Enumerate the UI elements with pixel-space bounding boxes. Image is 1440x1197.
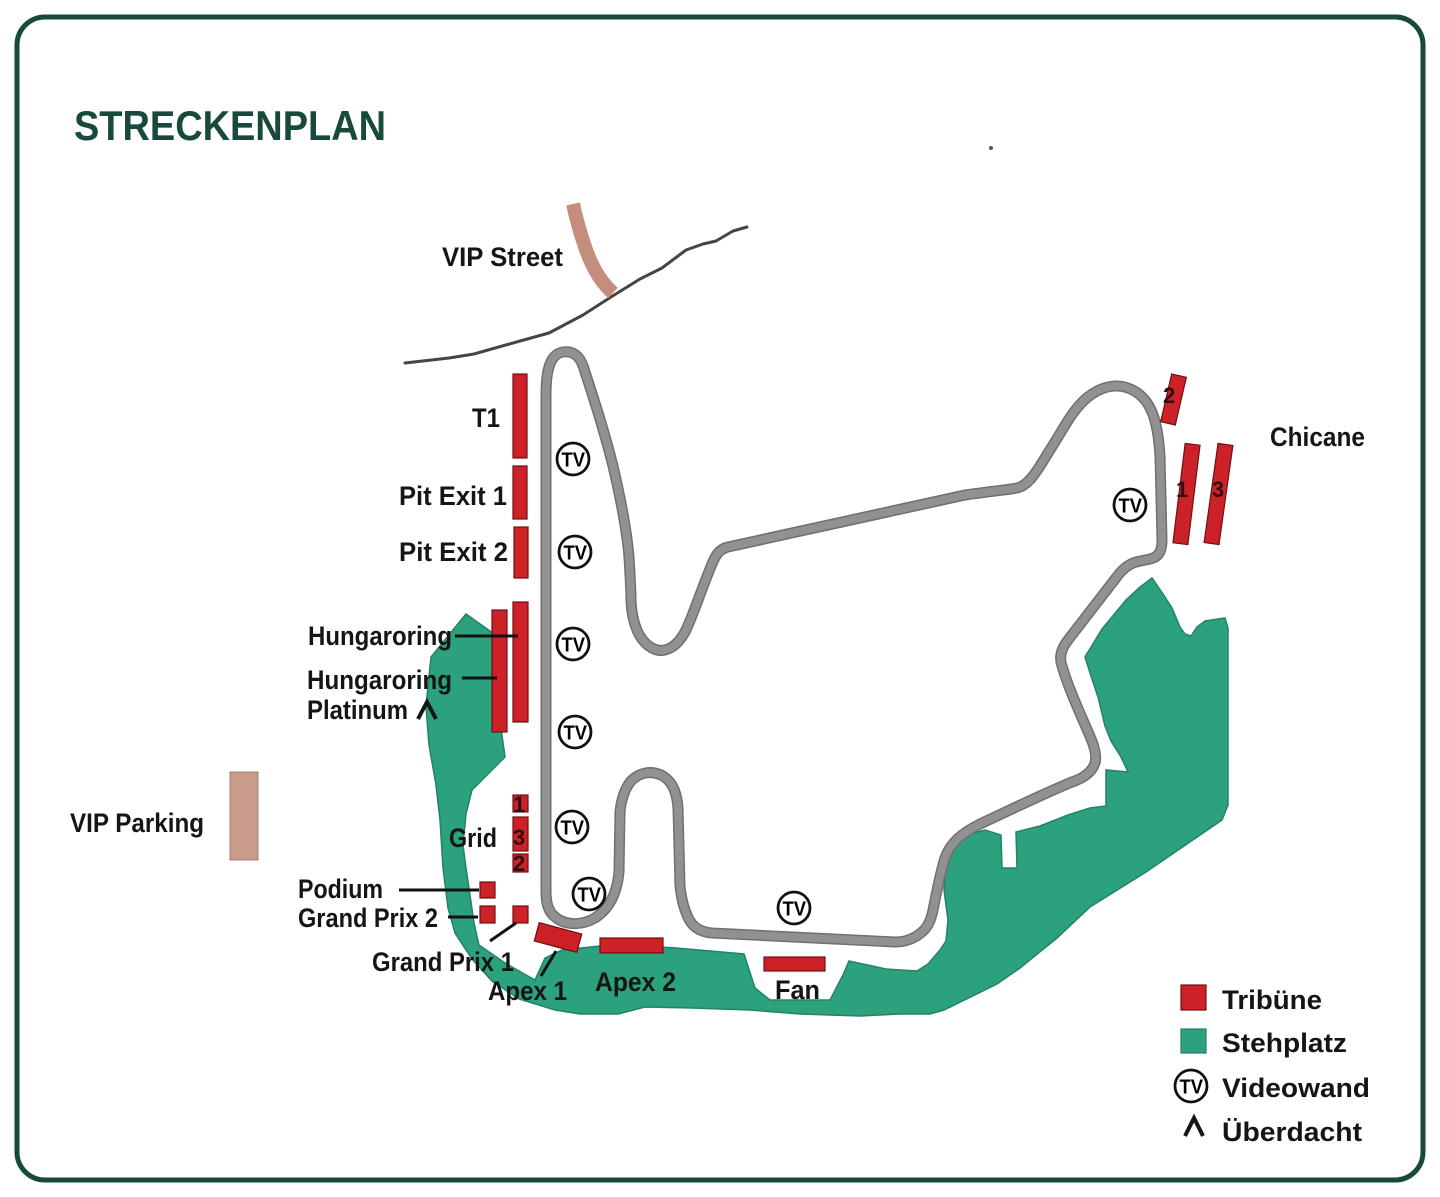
svg-text:TV: TV — [564, 542, 588, 565]
svg-text:Platinum: Platinum — [307, 695, 408, 725]
svg-text:Stehplatz: Stehplatz — [1222, 1028, 1347, 1058]
svg-text:VIP Parking: VIP Parking — [70, 808, 204, 838]
svg-text:Grand Prix 1: Grand Prix 1 — [372, 947, 514, 977]
svg-text:3: 3 — [513, 825, 525, 850]
svg-text:Pit Exit 2: Pit Exit 2 — [399, 537, 508, 567]
svg-text:Grid: Grid — [449, 823, 497, 853]
svg-text:Apex 2: Apex 2 — [595, 967, 676, 997]
svg-text:2: 2 — [513, 851, 525, 876]
svg-text:TV: TV — [562, 634, 586, 657]
svg-text:TV: TV — [1180, 1076, 1204, 1099]
svg-text:Apex 1: Apex 1 — [488, 976, 567, 1006]
svg-text:TV: TV — [1119, 495, 1143, 518]
svg-text:Überdacht: Überdacht — [1222, 1117, 1362, 1147]
svg-text:Videowand: Videowand — [1222, 1073, 1370, 1103]
svg-text:Hungaroring: Hungaroring — [307, 665, 452, 695]
svg-text:Chicane: Chicane — [1270, 422, 1365, 452]
svg-text:3: 3 — [1212, 477, 1224, 502]
svg-text:TV: TV — [578, 884, 602, 907]
svg-text:Pit Exit 1: Pit Exit 1 — [399, 481, 507, 511]
svg-text:STRECKENPLAN: STRECKENPLAN — [74, 102, 386, 149]
svg-text:2: 2 — [1163, 383, 1175, 408]
svg-text:TV: TV — [562, 449, 586, 472]
svg-text:Podium: Podium — [298, 874, 383, 904]
svg-text:TV: TV — [564, 722, 588, 745]
svg-text:VIP Street: VIP Street — [442, 242, 563, 272]
svg-text:Fan: Fan — [775, 975, 820, 1005]
svg-text:Tribüne: Tribüne — [1222, 985, 1322, 1015]
svg-text:Hungaroring: Hungaroring — [308, 621, 452, 651]
svg-text:Grand Prix 2: Grand Prix 2 — [298, 903, 438, 933]
svg-text:T1: T1 — [472, 403, 500, 433]
svg-text:TV: TV — [783, 898, 807, 921]
svg-text:1: 1 — [1176, 477, 1188, 502]
svg-text:1: 1 — [513, 792, 525, 817]
svg-text:TV: TV — [561, 817, 585, 840]
